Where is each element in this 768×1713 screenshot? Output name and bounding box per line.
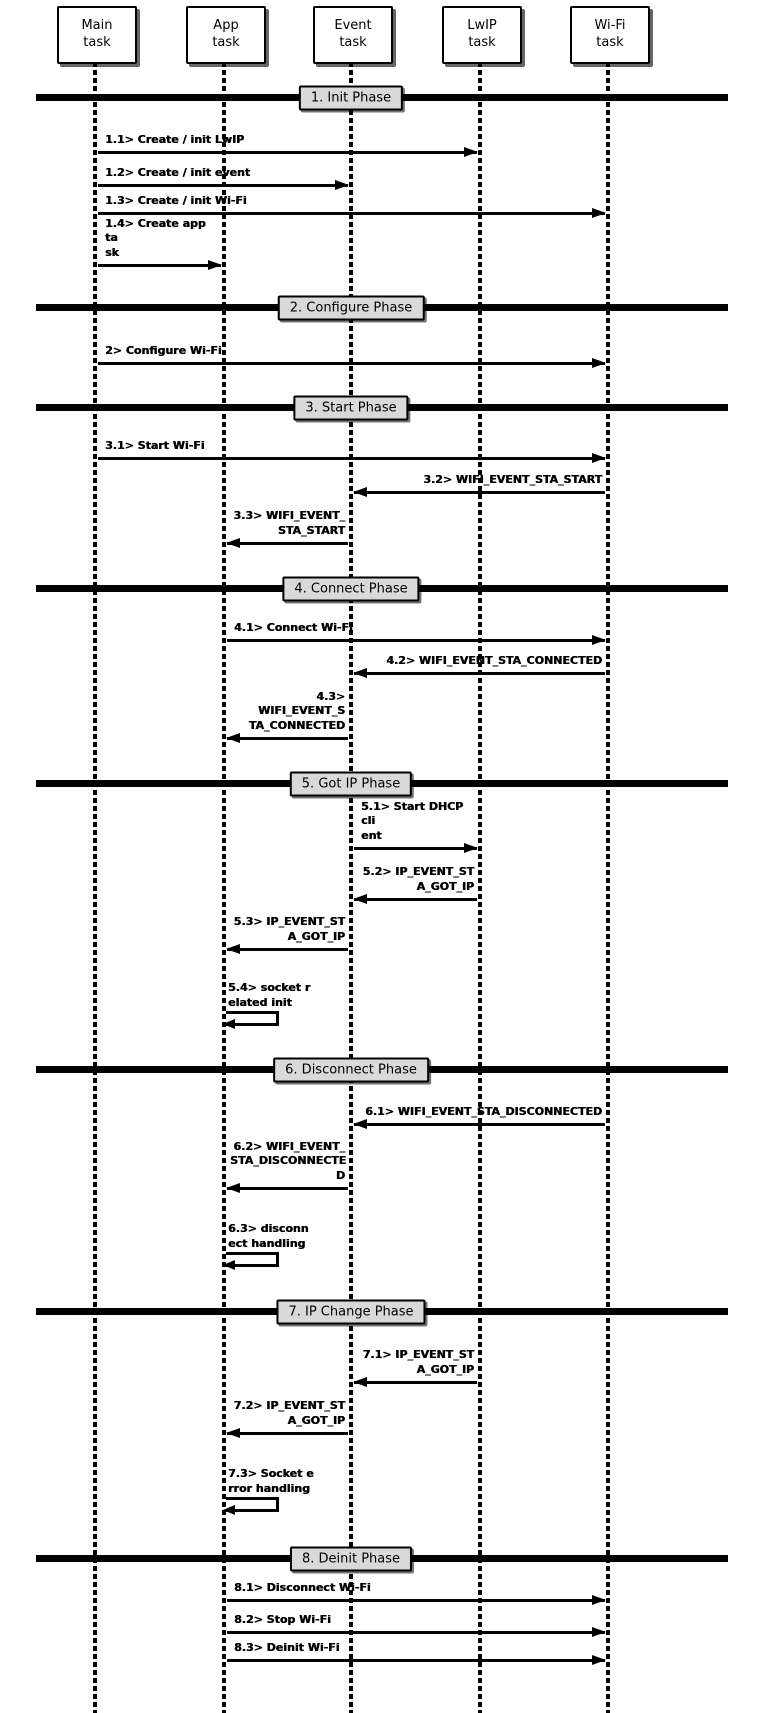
actor-label: App task: [212, 18, 239, 52]
message-label: 5.3> IP_EVENT_ST A_GOT_IP: [230, 915, 345, 944]
arrowhead-icon: [335, 180, 349, 190]
message-label: 7.2> IP_EVENT_ST A_GOT_IP: [230, 1399, 345, 1428]
arrowhead-icon: [464, 147, 478, 157]
message-line: [354, 1381, 477, 1384]
message-label: 1.3> Create / init Wi-Fi: [101, 194, 602, 209]
arrowhead-icon: [592, 453, 606, 463]
arrowhead-icon: [353, 487, 367, 497]
arrowhead-icon: [592, 1595, 606, 1605]
phase-label: 7. IP Change Phase: [276, 1299, 425, 1324]
message-label: 3.1> Start Wi-Fi: [101, 439, 602, 454]
arrowhead-icon: [223, 1019, 235, 1029]
message-label: 8.2> Stop Wi-Fi: [230, 1613, 602, 1628]
actor-label: Wi-Fi task: [594, 18, 625, 52]
message-label: 6.1> WIFI_EVENT_STA_DISCONNECTED: [357, 1105, 602, 1120]
message-label: 8.1> Disconnect Wi-Fi: [230, 1581, 602, 1596]
message-line: [227, 948, 348, 951]
message-line: [98, 264, 221, 267]
arrowhead-icon: [223, 1260, 235, 1270]
message-label: 3.2> WIFI_EVENT_STA_START: [357, 473, 602, 488]
phase-divider-connect: 4. Connect Phase: [36, 585, 728, 592]
arrowhead-icon: [592, 635, 606, 645]
message-line: [227, 542, 348, 545]
actor-box-lwip-task: LwIP task: [442, 6, 522, 64]
message-label: 1.1> Create / init LwIP: [101, 133, 474, 148]
message-line: [227, 1432, 348, 1435]
message-line: [227, 1187, 348, 1190]
message-line: [227, 1599, 605, 1602]
message-line: [98, 362, 605, 365]
arrowhead-icon: [592, 1627, 606, 1637]
arrowhead-icon: [226, 944, 240, 954]
phase-divider-ip-change: 7. IP Change Phase: [36, 1308, 728, 1315]
phase-divider-got-ip: 5. Got IP Phase: [36, 780, 728, 787]
phase-divider-init: 1. Init Phase: [36, 94, 728, 101]
message-label: 2> Configure Wi-Fi: [101, 344, 602, 359]
message-label: 3.3> WIFI_EVENT_ STA_START: [230, 509, 345, 538]
arrowhead-icon: [353, 1119, 367, 1129]
message-line: [98, 457, 605, 460]
phase-divider-configure: 2. Configure Phase: [36, 304, 728, 311]
phase-label: 6. Disconnect Phase: [273, 1057, 429, 1082]
phase-label: 4. Connect Phase: [282, 576, 419, 601]
arrowhead-icon: [464, 843, 478, 853]
actor-label: LwIP task: [467, 18, 497, 52]
phase-divider-disconnect: 6. Disconnect Phase: [36, 1066, 728, 1073]
phase-divider-deinit: 8. Deinit Phase: [36, 1555, 728, 1562]
message-label: 1.2> Create / init event: [101, 166, 345, 181]
message-label: 1.4> Create app ta sk: [101, 217, 218, 261]
phase-label: 1. Init Phase: [299, 85, 403, 110]
message-line: [354, 898, 477, 901]
actor-label: Main task: [81, 18, 112, 52]
message-label: 6.2> WIFI_EVENT_ STA_DISCONNECTE D: [230, 1140, 345, 1184]
phase-divider-start: 3. Start Phase: [36, 404, 728, 411]
message-line: [354, 847, 477, 850]
message-label: 4.3> WIFI_EVENT_S TA_CONNECTED: [230, 690, 345, 734]
phase-label: 5. Got IP Phase: [290, 771, 412, 796]
phase-label: 2. Configure Phase: [278, 295, 425, 320]
message-label: 7.3> Socket e rror handling: [228, 1467, 383, 1496]
actor-box-wifi-task: Wi-Fi task: [570, 6, 650, 64]
message-label: 4.2> WIFI_EVENT_STA_CONNECTED: [357, 654, 602, 669]
arrowhead-icon: [353, 668, 367, 678]
message-6-3: 6.3> disconn ect handling: [226, 1252, 279, 1267]
message-line: [98, 212, 605, 215]
message-5-4: 5.4> socket r elated init: [226, 1011, 279, 1026]
message-line: [98, 151, 477, 154]
message-line: [227, 639, 605, 642]
phase-label: 8. Deinit Phase: [290, 1546, 412, 1571]
arrowhead-icon: [226, 538, 240, 548]
message-line: [354, 672, 605, 675]
arrowhead-icon: [353, 1377, 367, 1387]
message-line: [227, 1659, 605, 1662]
arrowhead-icon: [592, 1655, 606, 1665]
arrowhead-icon: [592, 358, 606, 368]
message-label: 5.2> IP_EVENT_ST A_GOT_IP: [357, 865, 474, 894]
message-label: 7.1> IP_EVENT_ST A_GOT_IP: [357, 1348, 474, 1377]
arrowhead-icon: [592, 208, 606, 218]
message-line: [227, 1631, 605, 1634]
message-label: 4.1> Connect Wi-Fi: [230, 621, 602, 636]
arrowhead-icon: [353, 894, 367, 904]
phase-label: 3. Start Phase: [293, 395, 408, 420]
message-line: [227, 737, 348, 740]
message-label: 5.1> Start DHCP cli ent: [357, 800, 474, 844]
message-7-3: 7.3> Socket e rror handling: [226, 1497, 279, 1512]
message-line: [98, 184, 348, 187]
message-label: 6.3> disconn ect handling: [228, 1222, 383, 1251]
message-label: 8.3> Deinit Wi-Fi: [230, 1641, 602, 1656]
actor-box-event-task: Event task: [313, 6, 393, 64]
arrowhead-icon: [226, 1183, 240, 1193]
actor-box-main-task: Main task: [57, 6, 137, 64]
actor-box-app-task: App task: [186, 6, 266, 64]
arrowhead-icon: [223, 1505, 235, 1515]
sequence-diagram: 1. Init Phase 2. Configure Phase 3. Star…: [0, 0, 768, 1713]
actor-label: Event task: [334, 18, 371, 52]
arrowhead-icon: [226, 1428, 240, 1438]
arrowhead-icon: [208, 260, 222, 270]
message-line: [354, 1123, 605, 1126]
message-line: [354, 491, 605, 494]
message-label: 5.4> socket r elated init: [228, 981, 383, 1010]
arrowhead-icon: [226, 733, 240, 743]
